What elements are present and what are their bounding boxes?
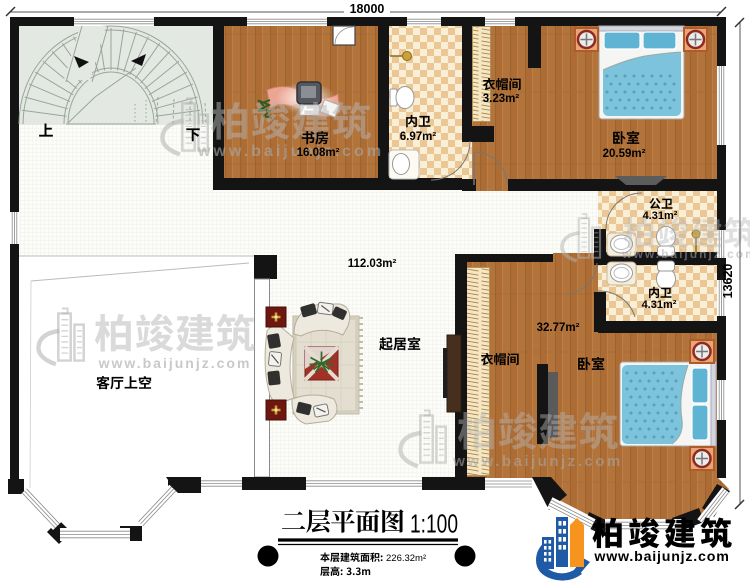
svg-text:16.08m²: 16.08m² [297, 147, 340, 159]
svg-text:18000: 18000 [350, 2, 385, 16]
svg-text:www.baijunjz.com: www.baijunjz.com [621, 247, 750, 261]
svg-text:13620: 13620 [721, 264, 735, 299]
svg-text:www.baijunjz.com: www.baijunjz.com [593, 549, 729, 565]
svg-text:www.baijunjz.com: www.baijunjz.com [197, 143, 384, 160]
svg-text:www.baijunjz.com: www.baijunjz.com [452, 453, 622, 470]
svg-text:4.31m²: 4.31m² [643, 210, 678, 222]
svg-text:226.32m²: 226.32m² [386, 553, 426, 564]
svg-text:4.31m²: 4.31m² [642, 299, 677, 311]
svg-text:6.97m²: 6.97m² [400, 131, 437, 143]
svg-text:20.59m²: 20.59m² [603, 148, 646, 160]
svg-text:32.77m²: 32.77m² [537, 322, 580, 334]
svg-text:112.03m²: 112.03m² [348, 258, 397, 270]
svg-text:1:100: 1:100 [410, 509, 458, 539]
svg-text:3.23m²: 3.23m² [483, 93, 520, 105]
svg-text:www.baijunjz.com: www.baijunjz.com [98, 355, 252, 371]
